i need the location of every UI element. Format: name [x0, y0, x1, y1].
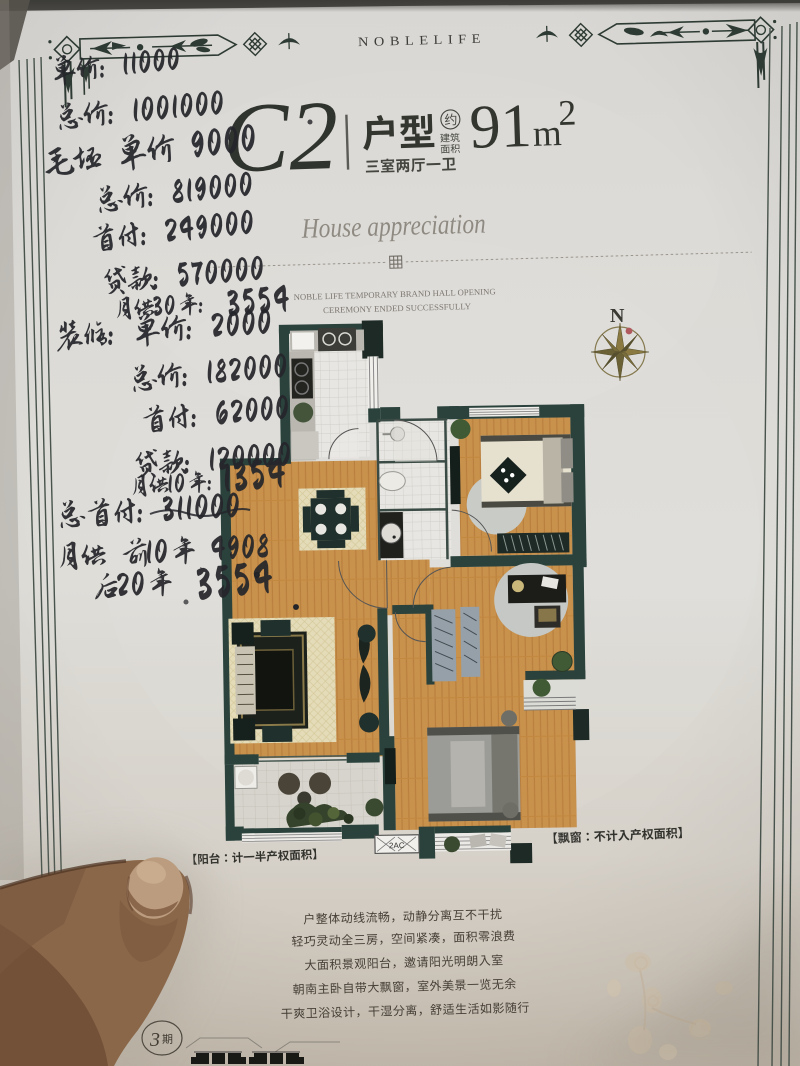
- svg-text:91: 91: [469, 92, 533, 162]
- svg-text:2: 2: [558, 92, 577, 133]
- svg-text:3: 3: [149, 1029, 160, 1051]
- svg-text:2AC: 2AC: [389, 841, 405, 850]
- svg-text:C2: C2: [221, 81, 340, 194]
- svg-text:N: N: [610, 305, 625, 327]
- svg-text:House appreciation: House appreciation: [301, 209, 487, 245]
